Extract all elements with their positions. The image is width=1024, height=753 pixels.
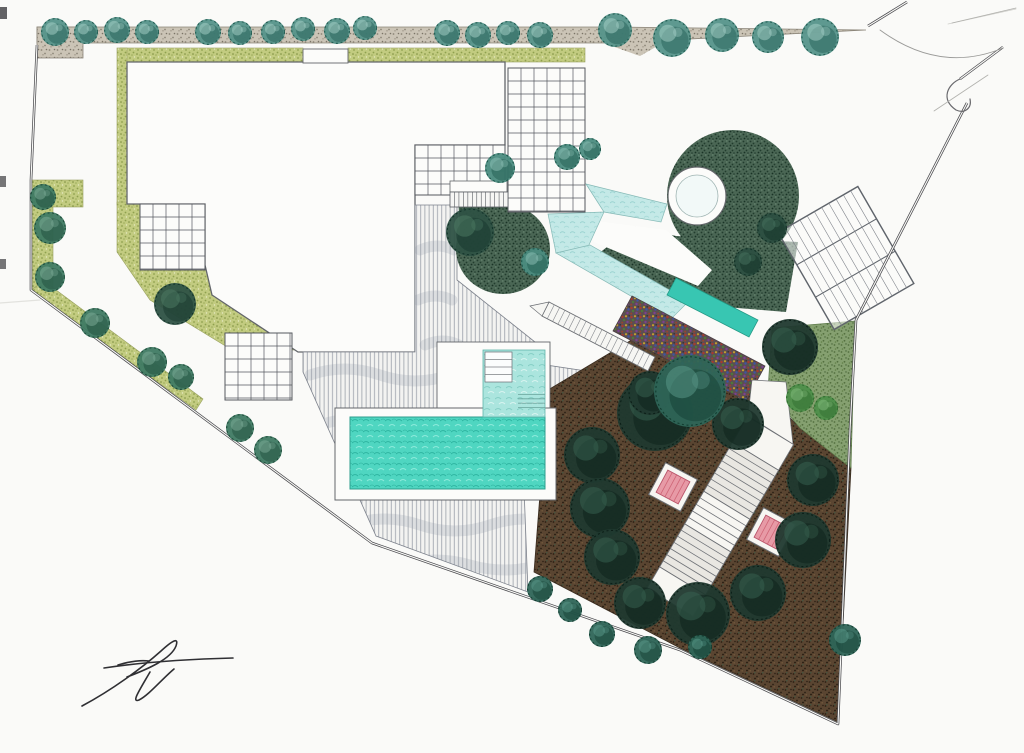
tree-icon xyxy=(564,427,620,483)
tree-icon xyxy=(35,262,65,292)
tree-icon xyxy=(291,17,315,41)
tree-icon xyxy=(104,17,130,43)
tree-icon xyxy=(226,414,254,442)
swimming-pool xyxy=(350,417,545,489)
tree-icon xyxy=(814,396,838,420)
punch-mark xyxy=(0,259,6,269)
tree-icon xyxy=(496,21,520,45)
tree-icon xyxy=(324,18,350,44)
tree-icon xyxy=(688,635,712,659)
tree-icon xyxy=(801,18,839,56)
patio-grid-2 xyxy=(225,333,292,400)
tree-icon xyxy=(752,21,784,53)
spa-circle-inner xyxy=(676,175,718,217)
tree-icon xyxy=(465,22,491,48)
tree-icon xyxy=(787,454,839,506)
tree-icon xyxy=(261,20,285,44)
tree-icon xyxy=(30,184,56,210)
tree-icon xyxy=(74,20,98,44)
tree-icon xyxy=(775,512,831,568)
tree-icon xyxy=(589,621,615,647)
tree-icon xyxy=(446,208,494,256)
tree-icon xyxy=(34,212,66,244)
tree-icon xyxy=(80,308,110,338)
tree-icon xyxy=(653,19,691,57)
tree-icon xyxy=(527,576,553,602)
tree-icon xyxy=(527,22,553,48)
tree-icon xyxy=(254,436,282,464)
tree-icon xyxy=(168,364,194,390)
tile-patio xyxy=(508,68,585,212)
tree-icon xyxy=(137,347,167,377)
tree-icon xyxy=(485,153,515,183)
punch-mark xyxy=(0,176,6,187)
tree-icon xyxy=(558,598,582,622)
hedge-strip-top-right xyxy=(348,48,585,62)
tree-icon xyxy=(757,213,787,243)
hedge-strip-top-left xyxy=(120,48,303,62)
tree-icon xyxy=(584,529,640,585)
tree-icon xyxy=(734,248,762,276)
tree-icon xyxy=(554,144,580,170)
site-plan-page: Hand-drawn landscape garden site plan wi… xyxy=(0,0,1024,753)
tree-icon xyxy=(135,20,159,44)
patio-grid-1 xyxy=(140,204,205,270)
punch-mark xyxy=(0,7,7,19)
site-plan-canvas: Hand-drawn landscape garden site plan wi… xyxy=(0,0,1024,753)
tree-icon xyxy=(634,636,662,664)
tree-icon xyxy=(829,624,861,656)
tree-icon xyxy=(154,283,196,325)
tree-icon xyxy=(353,16,377,40)
tree-icon xyxy=(705,18,739,52)
tree-icon xyxy=(570,478,630,538)
house-entry-notch xyxy=(303,49,348,63)
tree-icon xyxy=(598,13,632,47)
hedge-strip-house-left xyxy=(117,48,127,205)
tree-icon xyxy=(41,18,69,46)
tree-icon xyxy=(195,19,221,45)
tree-icon xyxy=(434,20,460,46)
tree-icon xyxy=(579,138,601,160)
tree-icon xyxy=(521,248,549,276)
tree-icon xyxy=(786,384,814,412)
tree-icon xyxy=(730,565,786,621)
tree-icon xyxy=(654,355,726,427)
tree-icon xyxy=(228,21,252,45)
tree-icon xyxy=(614,577,666,629)
tree-icon xyxy=(762,319,818,375)
